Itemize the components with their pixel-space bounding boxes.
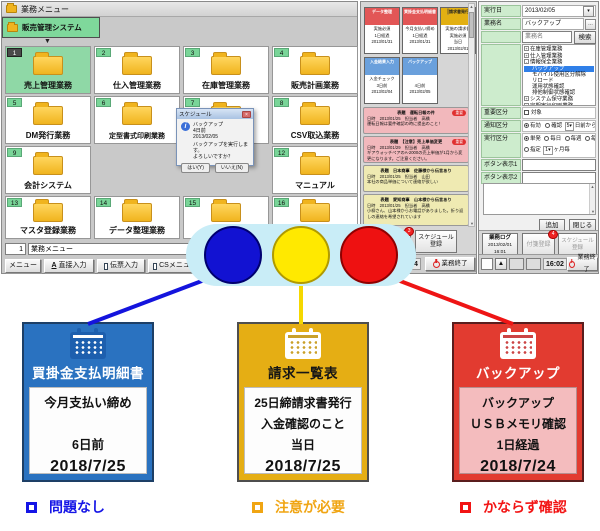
dialog-message: バックアップを実行します。 よろしいですか？ (177, 140, 253, 160)
cell-label: 売上管理業務 (6, 80, 90, 91)
memo-textarea[interactable]: ▲▼ (483, 183, 596, 215)
note-title: 表題 日本商事 佐藤様から伝言あり (367, 168, 465, 174)
cell-label: DM発行業務 (6, 130, 90, 141)
task-name-label: 業務名 (481, 18, 521, 30)
schedule-dialog: スケジュール × i バックアップ 4日前 2013/02/05 バックアップを… (176, 108, 254, 166)
close-icon[interactable]: × (242, 111, 251, 118)
cell-label: CSV取込業務 (273, 130, 357, 141)
search-button[interactable]: 検索 (574, 31, 596, 44)
cell-label: 定型書式印刷業務 (95, 131, 179, 141)
power-icon (433, 261, 440, 268)
calendar-icon (285, 332, 321, 359)
card-title: 請求一覧表 (239, 362, 367, 382)
sticky-note-button[interactable]: 付箋登録 3 (377, 230, 411, 253)
red-square-icon (460, 502, 471, 513)
note-body: 本社の商品単価について連絡が欲しい (367, 179, 465, 185)
folder-icon (211, 203, 241, 222)
radio-icon[interactable] (524, 123, 529, 128)
cell-number: 16 (274, 198, 289, 207)
document-icon (104, 263, 108, 270)
note-body: 運転日報は要件確認の時に提出のこと！ (367, 121, 465, 127)
blue-connector-line (88, 276, 215, 324)
scrollbar-thumb[interactable] (469, 12, 474, 38)
calendar-icon (447, 8, 449, 15)
task-name-value[interactable]: バックアップ (522, 18, 584, 30)
note-item[interactable]: 表題 日本商事 佐藤様から伝言あり 日時 2013/01/25 担当者 山田 本… (363, 165, 469, 192)
notify-label: 通知区分 (481, 120, 521, 132)
cell-label: データ整理業務 (95, 225, 179, 236)
status-input[interactable] (363, 258, 393, 270)
cell-label: マスタ登録業務 (6, 225, 90, 236)
notification-badge: 3 (404, 227, 414, 236)
up-arrow-button[interactable]: ▲ (495, 258, 507, 270)
legend-item-yellow: 注意が必要 (252, 497, 345, 517)
task-tree: +在庫管理業務 +仕入管理業務 -情報保全業務 バックアップ モバイル使用区分解… (522, 44, 596, 106)
important-label: 重要区分 (481, 107, 521, 119)
radio-icon[interactable] (545, 123, 550, 128)
legend-item-blue: 問題なし (26, 497, 105, 517)
exec-type-row: 単発 毎日 毎週 毎月 指定 1▾ヶ月毎 (522, 133, 596, 158)
dialog-titlebar: スケジュール × (177, 109, 253, 119)
status-bar: 16:04 業務終了 (361, 254, 476, 273)
cell-number: 3 (185, 48, 200, 57)
menu-cell-8[interactable]: 8 CSV取込業務 (272, 96, 358, 144)
cell-label: マニュアル (273, 180, 357, 191)
card-date: 2018/7/25 (30, 456, 146, 477)
menu-name-input[interactable] (28, 243, 254, 255)
menu-cell-5[interactable]: 5 DM発行業務 (5, 96, 91, 144)
tree-item[interactable]: +仕入管理業務 (524, 53, 594, 60)
tab-label: 販売管理システム (22, 22, 82, 33)
folder-icon (300, 203, 330, 222)
button1-input[interactable] (522, 159, 596, 171)
notify-row: 有効 確認 5▾日前から (522, 120, 596, 132)
menu-button[interactable]: メニュー (5, 259, 41, 273)
menu-cell-3[interactable]: 3 在庫管理業務 (183, 46, 269, 94)
cell-number: 15 (185, 198, 200, 207)
cs-menu-button[interactable]: CSメニュー (148, 259, 202, 273)
document-icon (153, 263, 157, 270)
spacer-label (481, 31, 521, 43)
exec-type-label: 実行区分 (481, 133, 521, 158)
yes-button[interactable]: はい(Y) (181, 163, 210, 173)
note-title: 表題 愛知商事 山本様から伝言あり (367, 197, 465, 203)
dialog-title: スケジュール (179, 110, 212, 118)
expander-icon[interactable]: + (524, 53, 529, 58)
legend-label: 注意が必要 (275, 497, 345, 517)
legend-item-red: かならず確認 (460, 497, 567, 517)
status-card-red: バックアップ バックアップ ＵＳＢメモリ確認 1日経過 2018/7/24 (452, 322, 584, 482)
menu-cell-15[interactable]: 15 (183, 196, 269, 239)
business-menu-window: 業務メニュー 販売管理システム ▼ 1 売上管理業務 2 仕入管理業務 3 在庫… (1, 1, 358, 274)
folder-icon (300, 106, 330, 125)
task-picker-icon[interactable]: … (585, 19, 596, 30)
important-badge: 重要 (452, 139, 466, 145)
menu-cell-1[interactable]: 1 売上管理業務 (5, 46, 91, 94)
direct-input-button[interactable]: A直接入力 (44, 259, 94, 273)
end-task-button[interactable]: 業務終了 (425, 257, 475, 271)
end-task-button[interactable]: 業務終了 (567, 257, 598, 271)
card-body: 4日前2013/02/05 (403, 75, 437, 96)
scrollbar[interactable]: ▲▼ (468, 3, 475, 227)
status-bar: ▲ 16:02 業務終了 (479, 254, 598, 273)
magnifier-button[interactable]: 拡大鏡 (205, 259, 249, 273)
card-body: 入金チェック3日前2013/02/04 (365, 75, 399, 96)
note-body: 小柳さん、山本様からお電話がありました。折り返しの連絡を希望されています (367, 208, 465, 219)
card-date: 2018/7/25 (245, 456, 361, 477)
note-item[interactable]: 表題 愛知商事 山本様から伝言あり 日時 2013/01/25 担当者 高橋 小… (363, 194, 469, 226)
schedule-card[interactable]: 入金結果入力 入金チェック3日前2013/02/04 (364, 57, 400, 104)
folder-icon (122, 203, 152, 222)
important-row: 対象 (522, 107, 596, 119)
window-titlebar: 業務メニュー (2, 2, 357, 17)
menu-cell-2[interactable]: 2 仕入管理業務 (94, 46, 180, 94)
clock: 16:04 (397, 258, 421, 270)
expander-icon[interactable]: - (524, 59, 529, 64)
schedule-card[interactable]: バックアップ 4日前2013/02/05 (402, 57, 438, 104)
menu-cell-12[interactable]: 12 マニュアル (272, 146, 358, 194)
days-select[interactable]: 5▾ (565, 122, 574, 131)
cell-number: 5 (7, 98, 22, 107)
notification-badge: 4 (548, 230, 558, 239)
legend-label: かならず確認 (483, 497, 567, 517)
expander-icon[interactable]: + (524, 96, 529, 101)
menu-cell-6[interactable]: 6 定型書式印刷業務 (94, 96, 180, 144)
chevron-down-icon: ▼ (44, 38, 51, 45)
calendar-icon (70, 332, 106, 359)
scrollbar[interactable]: ▲▼ (589, 184, 595, 214)
status-field (252, 260, 356, 272)
dialog-task-info: バックアップ 4日前 2013/02/05 (193, 122, 223, 140)
schedule-card[interactable]: 買掛金支払明細書 今月支払い締め1日経過2013/01/31 (402, 7, 438, 54)
cell-number: 4 (274, 48, 289, 57)
tab-sales-system[interactable]: 販売管理システム (2, 17, 100, 38)
folder-icon (33, 156, 63, 175)
calendar-icon (500, 332, 536, 359)
cell-label: 販売計画業務 (273, 80, 357, 91)
tree-item[interactable]: +システム保守業務 (524, 96, 594, 103)
important-badge: 重要 (452, 110, 466, 116)
menu-cell-16[interactable]: 16 (272, 196, 358, 239)
menu-number-input[interactable] (5, 243, 26, 255)
folder-icon (6, 5, 17, 13)
tree-item[interactable]: -情報保全業務 (524, 59, 594, 66)
schedule-card[interactable]: データ整理 実施必須1日経過2013/01/31 (364, 7, 400, 54)
card-title: 入金結果入力 (370, 59, 394, 64)
radio-icon[interactable] (565, 136, 570, 141)
exec-date-label: 実行日 (481, 5, 521, 17)
schedule-register-button[interactable]: スケジュール登録 (415, 230, 457, 253)
folder-icon (300, 156, 330, 175)
status-card-blue: 買掛金支払明細書 今月支払い締め 6日前 2018/7/25 (22, 322, 154, 482)
menu-cell-4[interactable]: 4 販売計画業務 (272, 46, 358, 94)
note-body: ギアウォッチペアのA-2000の売上単価が1月から変更になります。ご注意ください… (367, 150, 465, 161)
card-title: データ整理 (372, 9, 392, 14)
folder-icon (33, 56, 63, 75)
form-bottom-bar: 業務ログ 2013/02/0116:01 付箋登録 4 スケジュール登録 ▲ 1… (479, 230, 598, 273)
tree-item[interactable]: +定期実行印刷業務 (524, 103, 594, 106)
no-button[interactable]: いいえ(N) (215, 163, 249, 173)
cell-number: 14 (96, 198, 111, 207)
letter-a-icon: A (51, 260, 56, 272)
status-input[interactable] (526, 258, 541, 270)
magnifier-icon (214, 263, 218, 270)
schedule-form-window: 実行日 2013/02/05 ▾ 業務名 バックアップ … 検索 +在庫管理業務… (478, 1, 599, 274)
card-title: 請求書発行 (449, 9, 469, 14)
folder-icon (300, 56, 330, 75)
cell-label: 在庫管理業務 (184, 80, 268, 91)
status-input[interactable] (509, 258, 524, 270)
folder-icon (122, 56, 152, 75)
folder-icon (33, 203, 63, 222)
menu-cell-13[interactable]: 13 マスタ登録業務 (5, 196, 91, 239)
card-body: バックアップ ＵＳＢメモリ確認 1日経過 2018/7/24 (459, 387, 577, 474)
legend-label: 問題なし (49, 497, 105, 517)
clock: 16:02 (543, 258, 567, 270)
slip-input-button[interactable]: 伝票入力 (97, 259, 145, 273)
status-input[interactable] (481, 258, 493, 270)
note-item[interactable]: 表題 運転日報の件 重要 日時 2013/01/25 担当者 高橋 運転日報は要… (363, 107, 469, 134)
schedule-list-window: データ整理 実施必須1日経過2013/01/31 買掛金支払明細書 今月支払い締… (360, 1, 477, 274)
task-search-input[interactable] (522, 31, 572, 43)
card-title: バックアップ (454, 362, 582, 382)
window-title: 業務メニュー (21, 4, 69, 15)
power-icon (569, 261, 575, 268)
button1-label: ボタン表示1 (481, 159, 521, 171)
status-card-yellow: 請求一覧表 25日締請求書発行 入金確認のこと 当日 2018/7/25 (237, 322, 369, 482)
radio-icon[interactable] (544, 136, 549, 141)
note-item[interactable]: 表題 【注意】売上単価変更 重要 日時 2013/01/29 担当者 高橋 ギア… (363, 136, 469, 163)
card-date: 2018/7/24 (460, 456, 576, 477)
cell-label: 仕入管理業務 (95, 80, 179, 91)
radio-icon[interactable] (524, 147, 529, 152)
card-title: 買掛金支払明細書 (404, 9, 436, 14)
info-icon: i (181, 122, 190, 131)
expander-icon[interactable]: + (524, 46, 529, 51)
tree-spacer (481, 44, 521, 106)
months-select[interactable]: 1▾ (543, 146, 552, 155)
cell-number: 7 (185, 98, 200, 107)
cell-number: 13 (7, 198, 22, 207)
folder-icon (33, 106, 63, 125)
expander-icon[interactable]: + (524, 103, 529, 106)
card-body: 25日締請求書発行 入金確認のこと 当日 2018/7/25 (244, 387, 362, 474)
folder-icon (211, 56, 241, 75)
radio-icon[interactable] (585, 136, 590, 141)
blue-square-icon (26, 502, 37, 513)
cell-number: 12 (274, 148, 289, 157)
card-title: バックアップ (408, 59, 432, 64)
cell-number: 2 (96, 48, 111, 57)
calendar-dropdown-icon[interactable]: ▾ (583, 6, 594, 17)
card-body: 実施必須1日経過2013/01/31 (365, 25, 399, 46)
menu-cell-9[interactable]: 9 会計システム (5, 146, 91, 194)
cell-number: 8 (274, 98, 289, 107)
folder-icon (122, 106, 152, 125)
card-title: 買掛金支払明細書 (24, 362, 152, 382)
checkbox-icon[interactable] (524, 110, 529, 115)
red-connector-line (387, 276, 513, 324)
folder-icon (7, 24, 18, 32)
radio-icon[interactable] (524, 136, 529, 141)
cell-number: 9 (7, 148, 22, 157)
cell-number: 6 (96, 98, 111, 107)
menu-cell-14[interactable]: 14 データ整理業務 (94, 196, 180, 239)
card-body: 今月支払い締め1日経過2013/01/31 (403, 25, 437, 46)
tree-item[interactable]: +在庫管理業務 (524, 46, 594, 53)
cell-number: 1 (7, 48, 22, 57)
cell-label: 会計システム (6, 180, 90, 191)
card-body: 今月支払い締め 6日前 2018/7/25 (29, 387, 147, 474)
yellow-square-icon (252, 502, 263, 513)
